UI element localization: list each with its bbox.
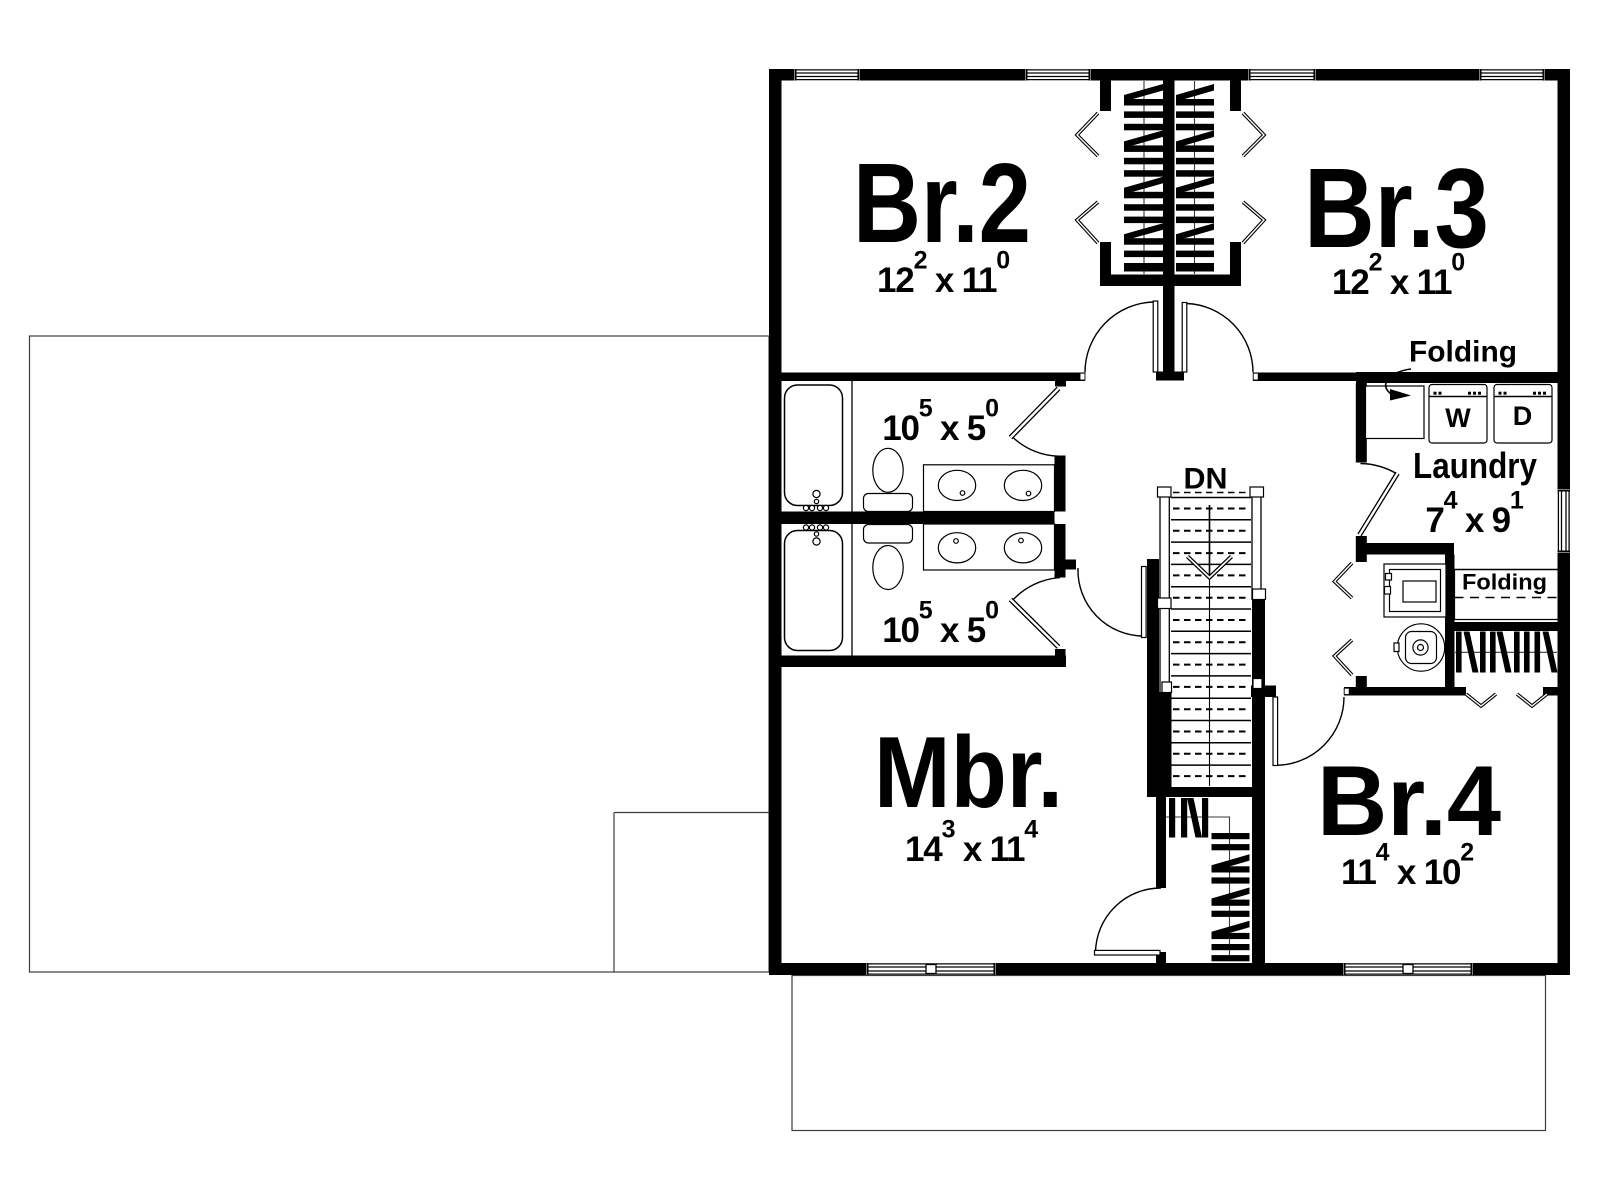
svg-text:Mbr.: Mbr. xyxy=(874,717,1063,829)
svg-text:Folding: Folding xyxy=(1462,570,1547,595)
svg-text:Laundry: Laundry xyxy=(1413,445,1537,486)
svg-text:DN: DN xyxy=(1184,463,1228,496)
svg-text:Folding: Folding xyxy=(1409,336,1517,369)
svg-text:Br.4: Br.4 xyxy=(1317,745,1501,856)
svg-text:D: D xyxy=(1513,401,1533,431)
svg-text:W: W xyxy=(1445,403,1471,433)
